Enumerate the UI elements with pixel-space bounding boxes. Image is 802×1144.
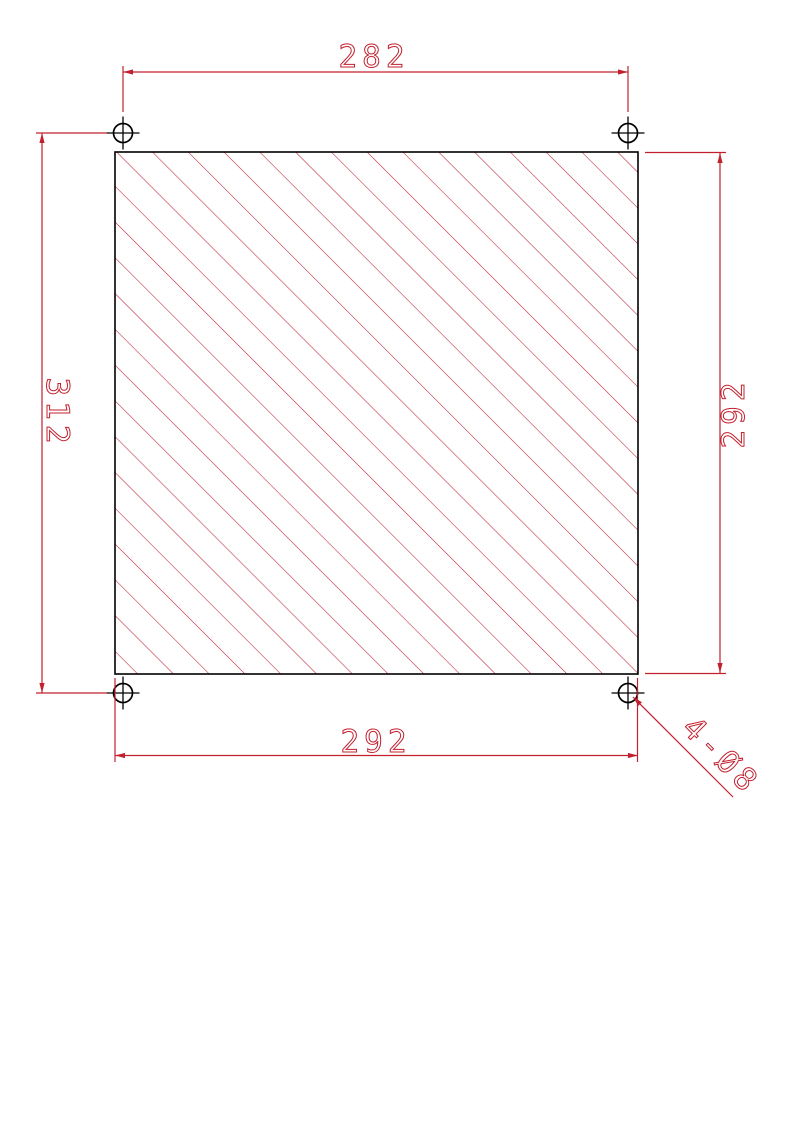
dimension-text-left: 312 (39, 378, 75, 449)
hole-mark-top-left (107, 117, 140, 150)
drawing-canvas: 282 312 292 292 4-Ø8 (0, 0, 802, 1144)
dimension-text-right: 292 (716, 378, 752, 449)
dimension-text-top: 282 (339, 39, 410, 75)
dimension-right: 292 (645, 153, 752, 674)
hole-mark-top-right (612, 117, 645, 150)
plate-outline (115, 152, 638, 674)
dimension-top: 282 (123, 39, 628, 112)
hole-mark-bottom-right (612, 677, 645, 710)
hole-mark-bottom-left (107, 677, 140, 710)
dimension-text-bottom: 292 (341, 724, 412, 760)
hole-callout-leader: 4-Ø8 (633, 697, 767, 802)
hole-callout-text: 4-Ø8 (675, 710, 767, 802)
dimension-left: 312 (36, 133, 107, 693)
drawing-page: 282 312 292 292 4-Ø8 (0, 0, 802, 1144)
dimension-bottom: 292 (115, 678, 638, 762)
